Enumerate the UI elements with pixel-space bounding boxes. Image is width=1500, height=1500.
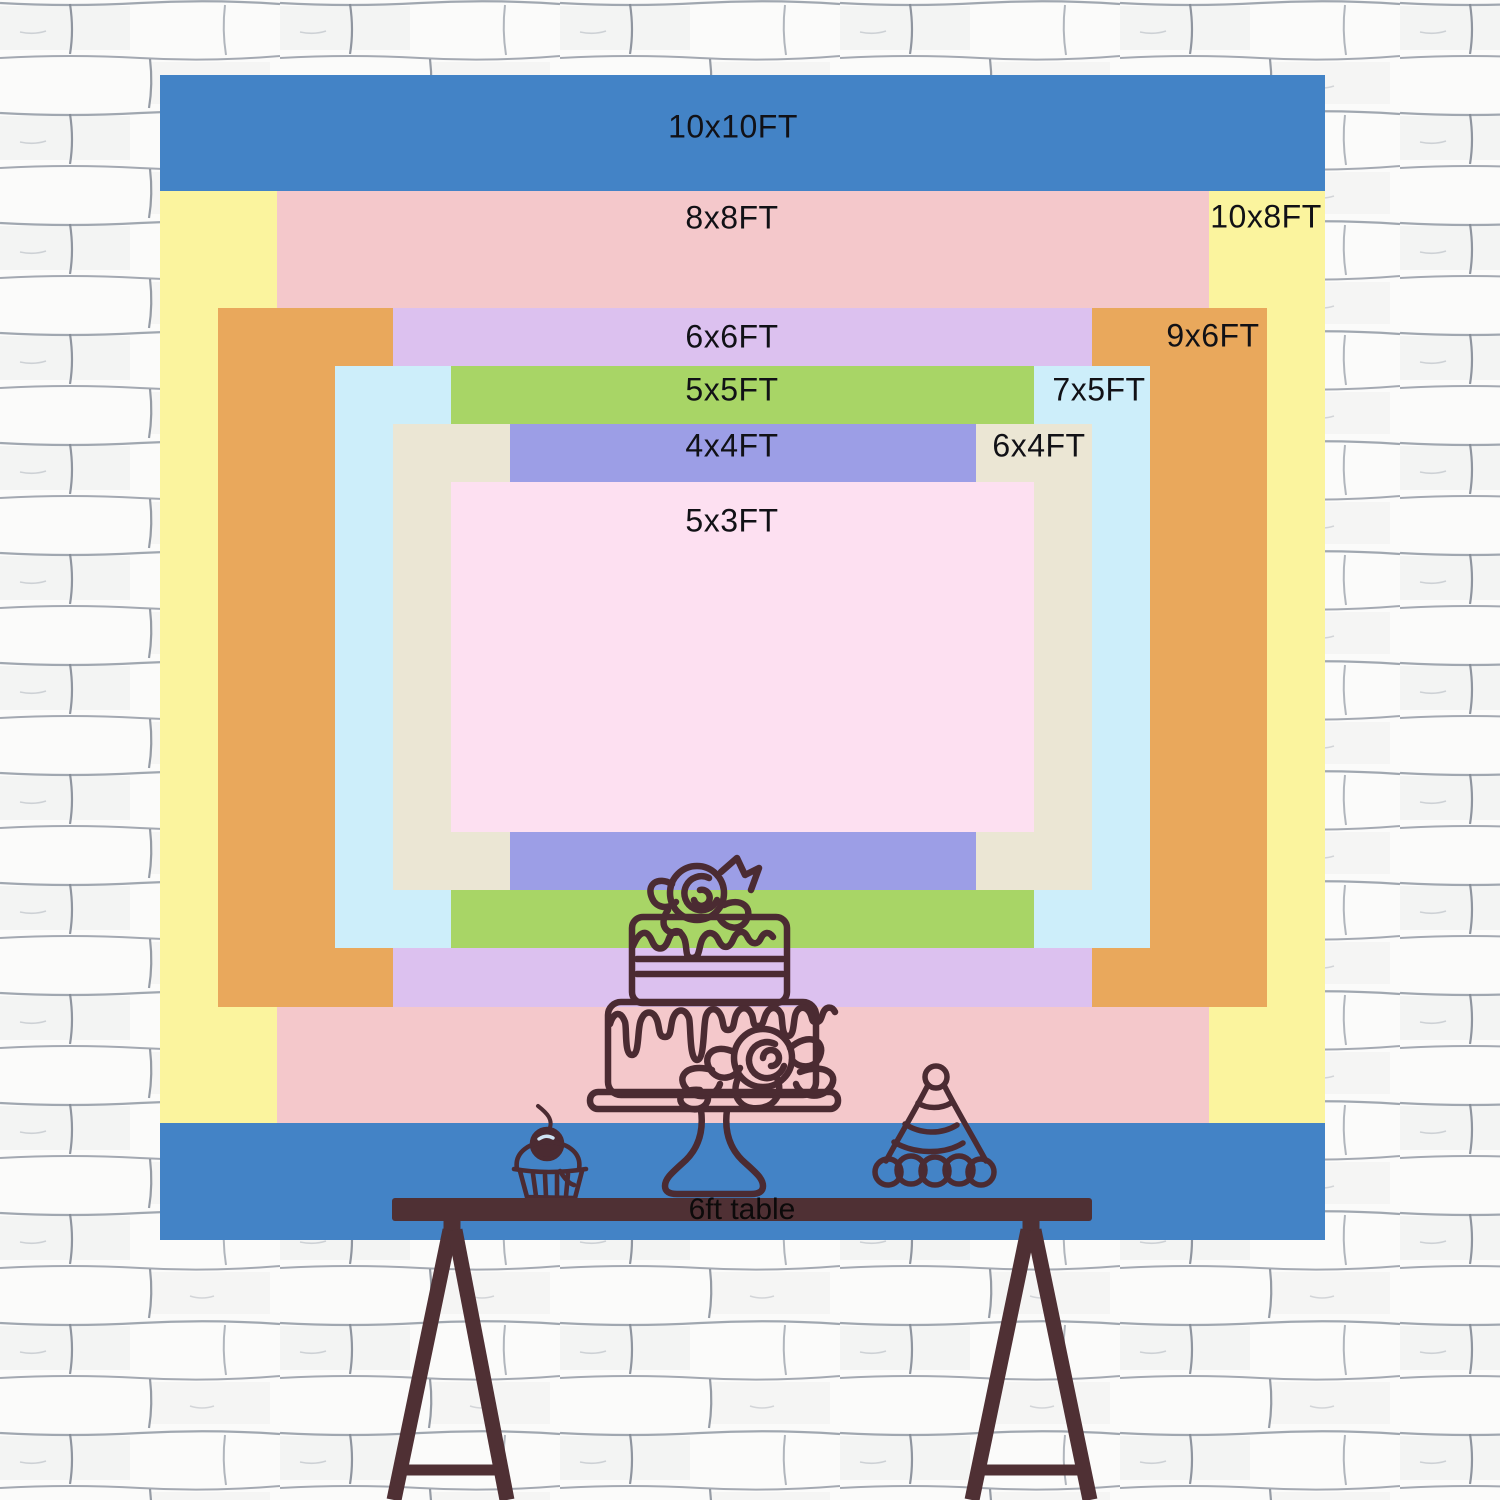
trestle-legs xyxy=(394,1220,1090,1500)
illustration-layer xyxy=(0,0,1500,1500)
cake-icon xyxy=(590,858,838,1194)
cupcake-icon xyxy=(514,1106,586,1198)
party-hat-icon xyxy=(875,1066,994,1185)
table-size-label: 6ft table xyxy=(689,1193,796,1227)
backdrop-size-infographic: 10x10FT10x8FT8x8FT9x6FT6x6FT7x5FT5x5FT6x… xyxy=(0,0,1500,1500)
table xyxy=(392,1198,1092,1500)
